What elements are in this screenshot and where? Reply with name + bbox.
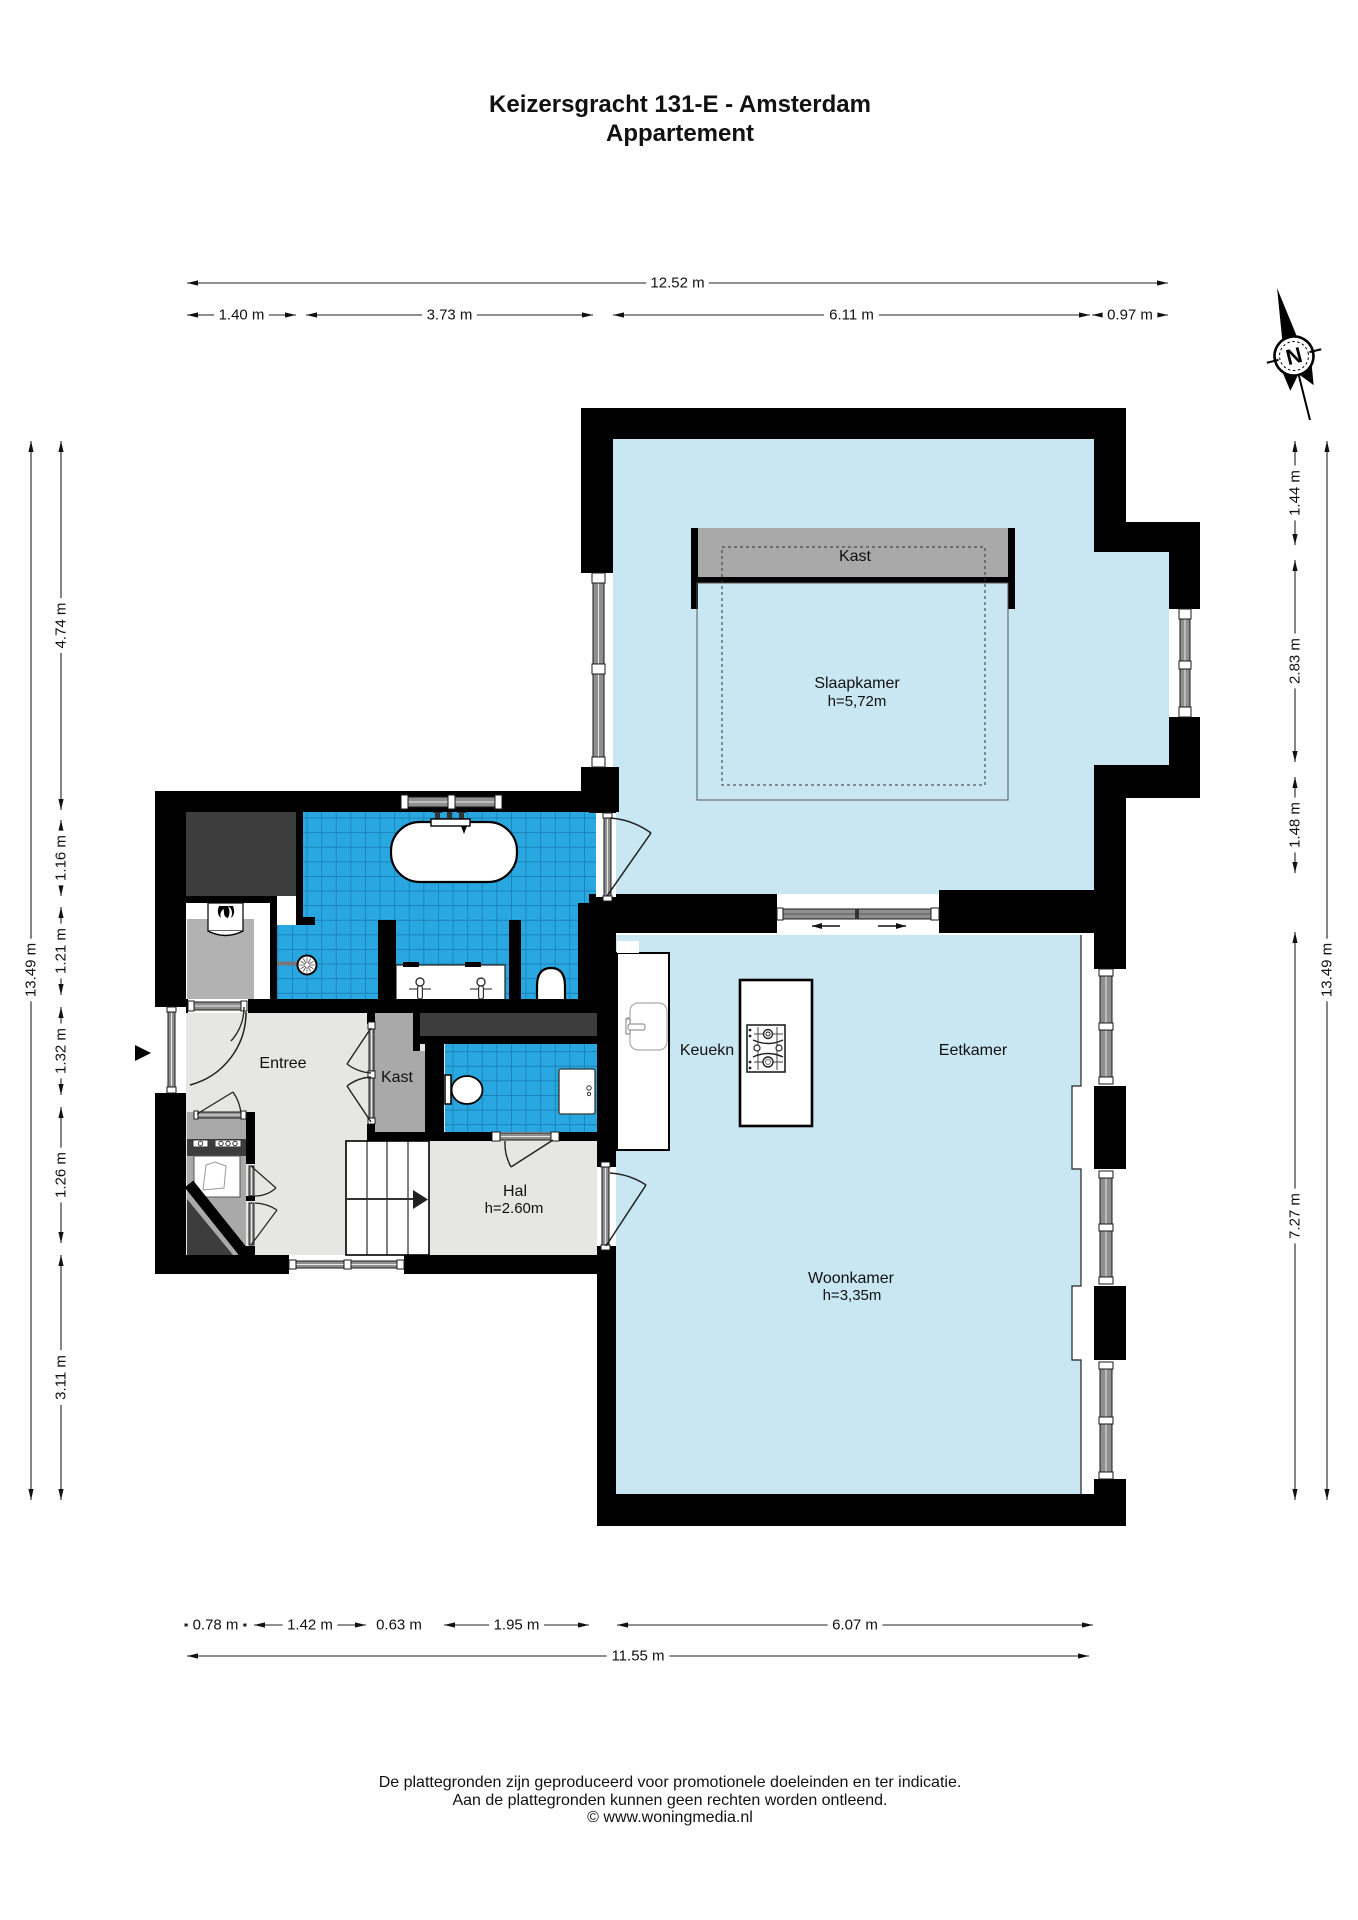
svg-text:1.95 m: 1.95 m [494, 1617, 540, 1634]
svg-text:6.11 m: 6.11 m [829, 307, 874, 324]
svg-text:Aan de plattegronden kunnen ge: Aan de plattegronden kunnen geen rechten… [452, 1792, 887, 1809]
svg-text:© www.woningmedia.nl: © www.woningmedia.nl [587, 1809, 753, 1826]
svg-text:13.49 m: 13.49 m [23, 943, 40, 997]
svg-text:Kast: Kast [381, 1069, 414, 1086]
svg-text:12.52 m: 12.52 m [650, 275, 704, 292]
svg-text:Hal: Hal [503, 1183, 527, 1200]
svg-text:1.21 m: 1.21 m [53, 928, 70, 974]
svg-text:Woonkamer: Woonkamer [808, 1270, 895, 1287]
svg-text:0.78 m: 0.78 m [193, 1617, 239, 1634]
svg-text:h=3,35m: h=3,35m [823, 1287, 882, 1304]
svg-text:2.83 m: 2.83 m [1287, 638, 1304, 684]
svg-text:De plattegronden zijn geproduc: De plattegronden zijn geproduceerd voor … [379, 1774, 962, 1791]
svg-text:7.27 m: 7.27 m [1287, 1193, 1304, 1239]
svg-text:1.48 m: 1.48 m [1287, 802, 1304, 848]
svg-text:Kast: Kast [839, 548, 872, 565]
svg-text:1.32 m: 1.32 m [53, 1028, 70, 1074]
svg-text:Entree: Entree [259, 1055, 306, 1072]
svg-text:1.40 m: 1.40 m [219, 307, 265, 324]
svg-text:1.44 m: 1.44 m [1287, 470, 1304, 516]
svg-text:Keuekn: Keuekn [680, 1042, 734, 1059]
svg-text:11.55 m: 11.55 m [611, 1648, 664, 1665]
svg-text:Keizersgracht 131-E - Amsterda: Keizersgracht 131-E - Amsterdam [489, 91, 871, 118]
svg-text:1.42 m: 1.42 m [287, 1617, 333, 1634]
svg-text:Eetkamer: Eetkamer [939, 1042, 1008, 1059]
svg-text:h=2.60m: h=2.60m [485, 1200, 544, 1217]
svg-text:3.73 m: 3.73 m [427, 307, 473, 324]
svg-text:Appartement: Appartement [606, 120, 754, 147]
svg-text:1.26 m: 1.26 m [53, 1152, 70, 1198]
svg-text:h=5,72m: h=5,72m [828, 693, 887, 710]
svg-text:1.16 m: 1.16 m [53, 835, 70, 881]
svg-text:Slaapkamer: Slaapkamer [814, 675, 900, 692]
svg-text:0.97 m: 0.97 m [1107, 307, 1153, 324]
svg-text:13.49 m: 13.49 m [1319, 943, 1336, 997]
svg-text:0.63 m: 0.63 m [376, 1617, 422, 1634]
svg-text:4.74 m: 4.74 m [53, 603, 70, 649]
svg-text:3.11 m: 3.11 m [53, 1355, 70, 1400]
svg-text:6.07 m: 6.07 m [832, 1617, 878, 1634]
